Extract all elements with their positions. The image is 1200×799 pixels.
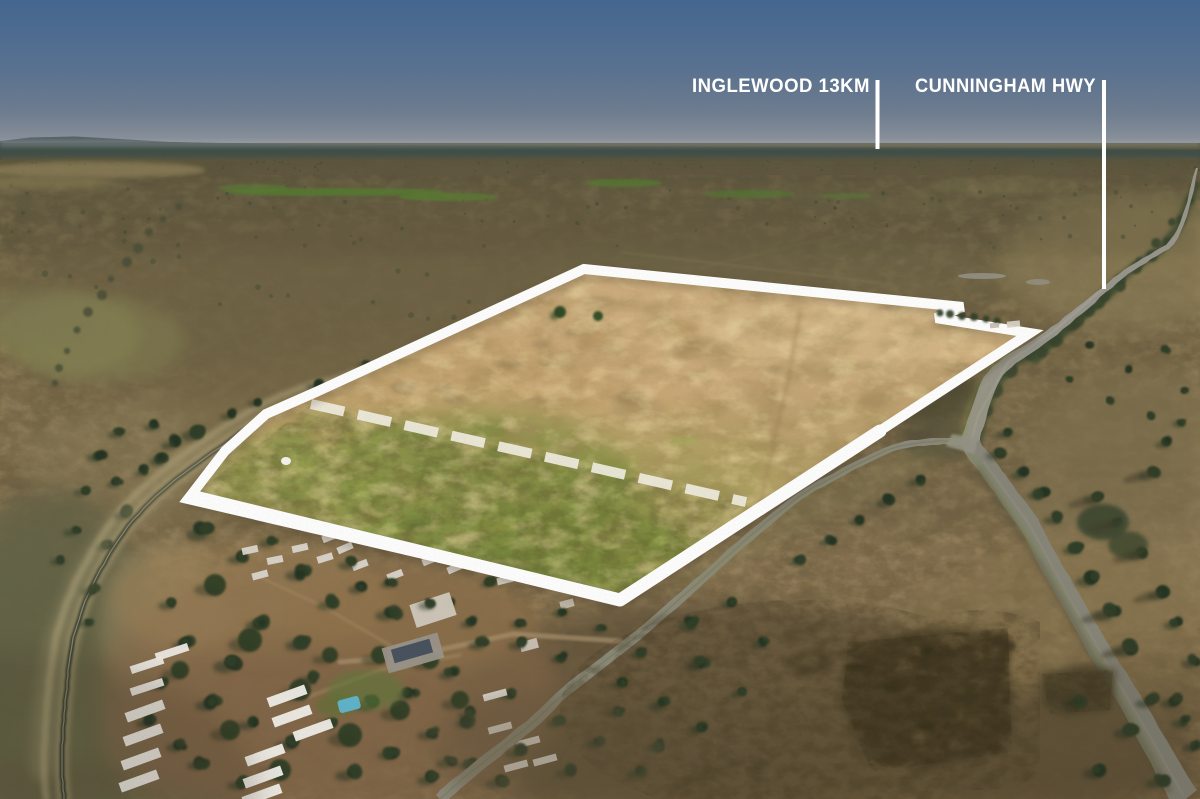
svg-text:INGLEWOOD 13KM: INGLEWOOD 13KM bbox=[692, 76, 870, 97]
svg-text:CUNNINGHAM HWY: CUNNINGHAM HWY bbox=[915, 76, 1096, 97]
